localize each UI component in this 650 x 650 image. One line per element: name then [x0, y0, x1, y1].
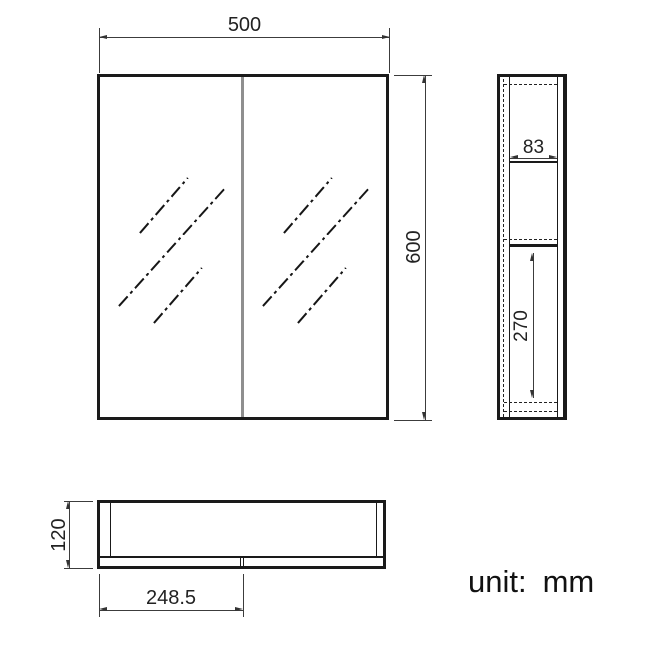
bottom-view-door-split	[243, 557, 245, 566]
side-view-shelf-line	[510, 244, 557, 247]
dimension-label-side-depth: 83	[510, 138, 557, 158]
dimension-label-front-width: 500	[99, 15, 390, 35]
arrowhead-up-icon	[422, 75, 426, 83]
side-view-hidden-bottom-edge	[504, 402, 557, 403]
side-view-hidden-top-edge	[504, 84, 557, 85]
extension-line	[394, 420, 432, 421]
side-view-shelf-line	[510, 161, 557, 163]
side-view-back-panel-line	[509, 77, 511, 417]
side-view-hidden-shelf-edge	[504, 239, 557, 240]
arrowhead-up-icon	[530, 253, 534, 261]
dimension-line-500	[99, 37, 390, 38]
side-view-door-outer-line	[563, 77, 565, 417]
bottom-view-left-panel-line	[110, 503, 112, 557]
bottom-view-outline	[97, 500, 386, 569]
dimension-line-270	[533, 253, 534, 398]
bottom-view-door-split	[240, 557, 242, 566]
dimension-label-bottom-depth: 120	[49, 505, 69, 565]
arrowhead-right-icon	[382, 35, 390, 39]
front-view-door-divider	[241, 77, 244, 417]
dimension-label-front-height: 600	[404, 217, 424, 277]
arrowhead-down-icon	[530, 390, 534, 398]
dimension-line-248	[99, 610, 243, 611]
dimension-label-door-width: 248.5	[99, 588, 243, 608]
side-view-hidden-bottom-edge	[504, 411, 557, 412]
dimension-label-shelf-height: 270	[512, 296, 532, 356]
unit-note: unit:mm	[468, 565, 594, 599]
unit-note-prefix: unit:	[468, 564, 527, 599]
arrowhead-down-icon	[422, 412, 426, 420]
arrowhead-left-icon	[99, 35, 107, 39]
bottom-view-right-panel-line	[376, 503, 378, 557]
side-view-door-inner-line	[557, 77, 559, 417]
bottom-view-door-line	[100, 556, 383, 558]
side-view-hidden-edge	[503, 79, 504, 417]
technical-drawing-canvas: 500 600 83 270 120	[0, 0, 650, 650]
unit-note-value: mm	[543, 564, 595, 599]
